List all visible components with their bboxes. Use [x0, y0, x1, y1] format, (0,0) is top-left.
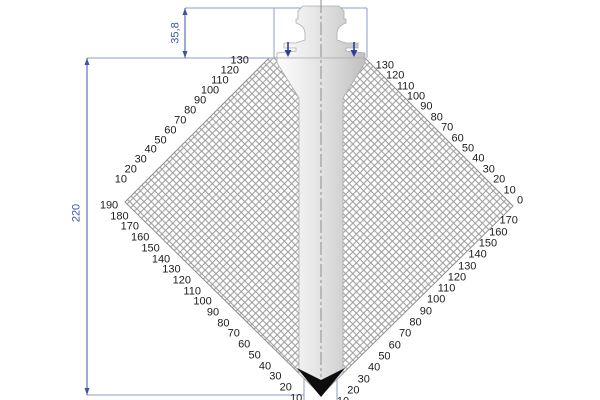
- scale-label-upper_right-10: 10: [503, 185, 515, 196]
- arrow-up-icon: [85, 58, 90, 65]
- scale-label-lower_right-60: 60: [389, 340, 401, 351]
- diagram-graphics: [0, 0, 600, 400]
- scale-label-lower_right-30: 30: [358, 374, 370, 385]
- scale-label-lower_left-10: 10: [290, 393, 302, 400]
- scale-label-lower_right-90: 90: [420, 306, 432, 317]
- scale-label-lower_right-80: 80: [409, 318, 421, 329]
- press-brake-punch-diagram: 1301201101009080706050403020101301201101…: [0, 0, 600, 400]
- dimension-total-height-label: 220: [72, 204, 83, 222]
- scale-label-lower_right-70: 70: [399, 329, 411, 340]
- arrow-up-icon: [183, 8, 188, 15]
- arrow-down-icon: [183, 51, 188, 58]
- scale-label-upper_left-10: 10: [115, 175, 127, 186]
- scale-label-lower_right-50: 50: [378, 351, 390, 362]
- scale-label-lower_right-40: 40: [368, 363, 380, 374]
- scale-label-upper_right-0: 0: [517, 196, 523, 207]
- dimension-tang-height-label: 35,8: [171, 22, 182, 43]
- scale-label-lower_right-10: 10: [337, 397, 349, 400]
- arrow-down-icon: [85, 388, 90, 395]
- scale-label-lower_right-20: 20: [347, 385, 359, 396]
